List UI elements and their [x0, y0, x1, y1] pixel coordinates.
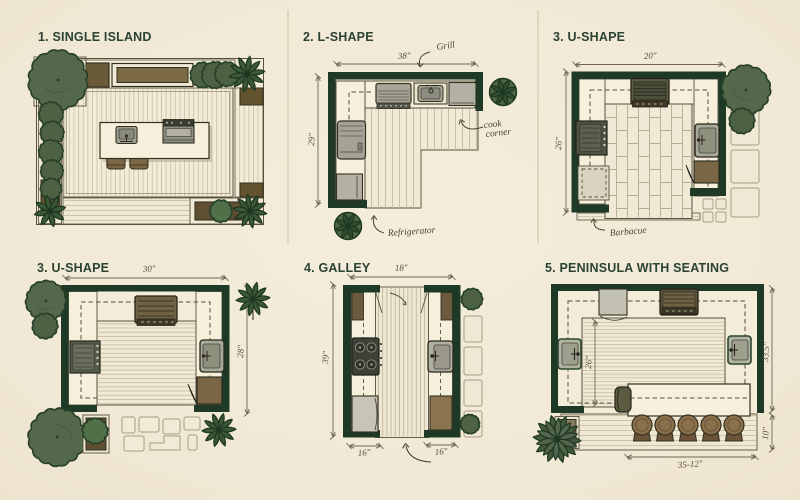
svg-text:1. SINGLE ISLAND: 1. SINGLE ISLAND: [38, 30, 152, 44]
svg-text:Refrigerator: Refrigerator: [386, 225, 435, 239]
svg-text:2. L-SHAPE: 2. L-SHAPE: [303, 30, 374, 44]
svg-text:corner: corner: [485, 127, 512, 140]
svg-text:30": 30": [142, 263, 157, 274]
svg-text:16": 16": [357, 447, 371, 458]
svg-text:29": 29": [306, 132, 317, 146]
svg-text:28": 28": [235, 344, 246, 358]
svg-text:26": 26": [553, 136, 564, 150]
svg-text:20": 20": [644, 50, 658, 61]
svg-text:Barbacue: Barbacue: [609, 226, 647, 239]
svg-text:5. PENINSULA WITH SEATING: 5. PENINSULA WITH SEATING: [545, 261, 729, 275]
svg-text:3. U-SHAPE: 3. U-SHAPE: [37, 261, 109, 275]
svg-text:3. U-SHAPE: 3. U-SHAPE: [553, 30, 625, 44]
svg-text:38": 38": [397, 50, 412, 61]
svg-text:35-12": 35-12": [676, 458, 703, 470]
svg-text:18": 18": [395, 262, 409, 273]
svg-text:4. GALLEY: 4. GALLEY: [304, 261, 371, 275]
svg-text:33.5": 33.5": [760, 342, 771, 363]
svg-text:Grill: Grill: [436, 40, 456, 53]
svg-text:16": 16": [434, 446, 448, 457]
svg-text:39": 39": [320, 350, 331, 365]
svg-text:10": 10": [760, 426, 771, 440]
svg-text:26": 26": [583, 355, 594, 369]
